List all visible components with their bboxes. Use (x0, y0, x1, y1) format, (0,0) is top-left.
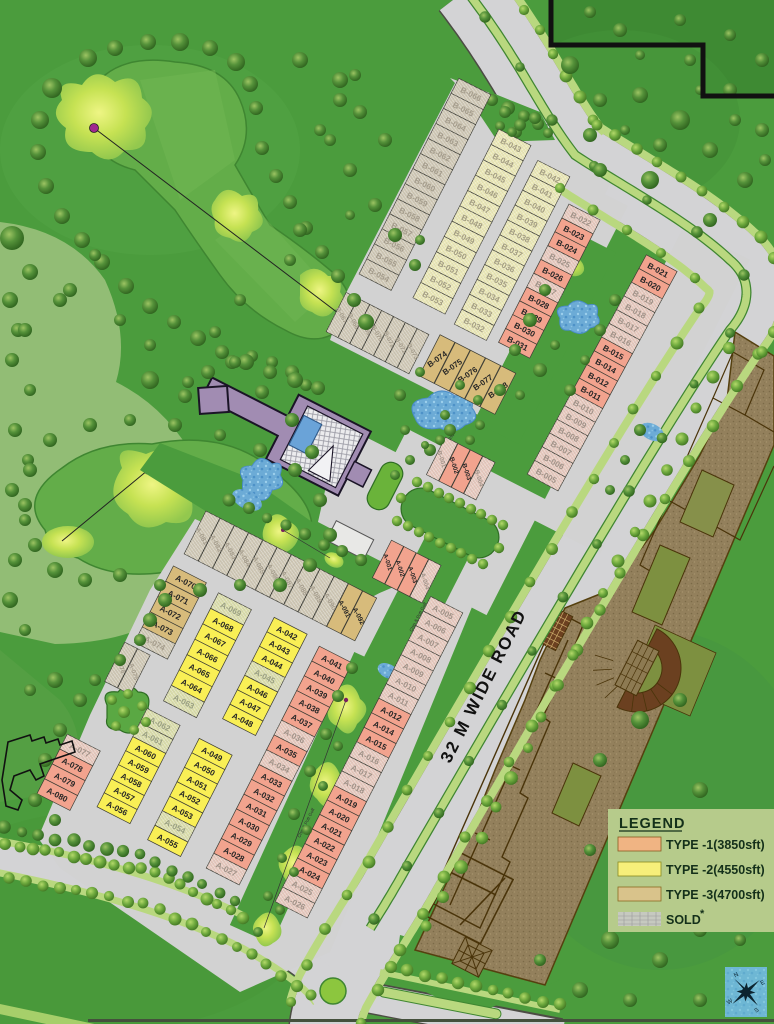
svg-text:TYPE -3(4700sft): TYPE -3(4700sft) (666, 888, 765, 902)
svg-text:*: * (700, 908, 705, 920)
svg-text:LEGEND: LEGEND (619, 816, 685, 832)
svg-text:TYPE -2(4550sft): TYPE -2(4550sft) (666, 863, 765, 877)
svg-text:SOLD: SOLD (666, 913, 701, 927)
svg-text:TYPE -1(3850sft): TYPE -1(3850sft) (666, 838, 765, 852)
